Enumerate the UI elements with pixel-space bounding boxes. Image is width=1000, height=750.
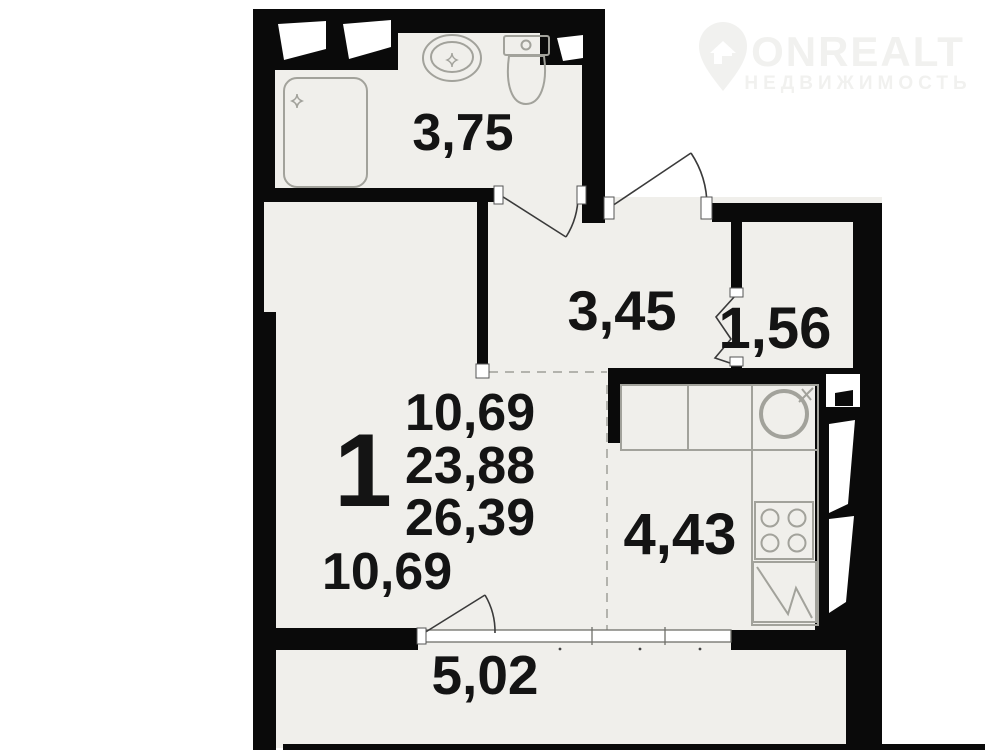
bathroom-door-jamb-left [494,186,503,204]
floor-plan-canvas: ONREALT НЕДВИЖИМОСТЬ [0,0,1000,750]
bathroom-door-jamb-right [577,186,586,204]
rooms-count-label: 1 [334,413,392,529]
entrance-door-jamb-right [701,197,712,219]
wall-kitchen-bottom [731,630,858,650]
watermark-tagline: НЕДВИЖИМОСТЬ [744,73,971,94]
house-door-notch [722,56,732,64]
wall-living-bottom [253,628,418,650]
room-label-hallway: 3,45 [568,279,677,342]
room-label-kitchen: 4,43 [624,502,737,567]
wall-kitchen-left-stub [608,385,620,443]
wall-loggia-right [846,628,882,750]
window-frame [418,630,731,642]
summary-total-area: 23,88 [405,437,535,495]
window-tick-1 [559,648,562,651]
loggia-bottom-edge-line [283,744,985,750]
room-label-loggia: 5,02 [431,644,538,706]
loggia-door-jamb [417,628,426,644]
wall-wardrobe-left [731,222,742,288]
watermark-brand: ONREALT [751,28,965,75]
wall-bathroom-bottom [253,188,494,202]
room-label-wardrobe: 1,56 [719,296,832,361]
wall-kitchen-top [608,368,858,385]
wall-living-hall-divider [477,200,488,365]
wall-left-lower [253,312,276,750]
divider-wall-end-cap [476,364,489,378]
wall-wardrobe-top [712,203,882,222]
summary-total-with-loggia: 26,39 [405,489,535,547]
floor-plan-page: ONREALT НЕДВИЖИМОСТЬ [0,0,1000,750]
wall-left-upper [253,9,275,200]
room-label-bathroom: 3,75 [412,104,513,162]
summary-living-area: 10,69 [405,384,535,442]
window-tick-2 [639,648,642,651]
room-label-living: 10,69 [322,543,452,601]
entrance-door-jamb-left [604,197,614,219]
wall-left-mid [253,200,264,312]
window-tick-3 [699,648,702,651]
